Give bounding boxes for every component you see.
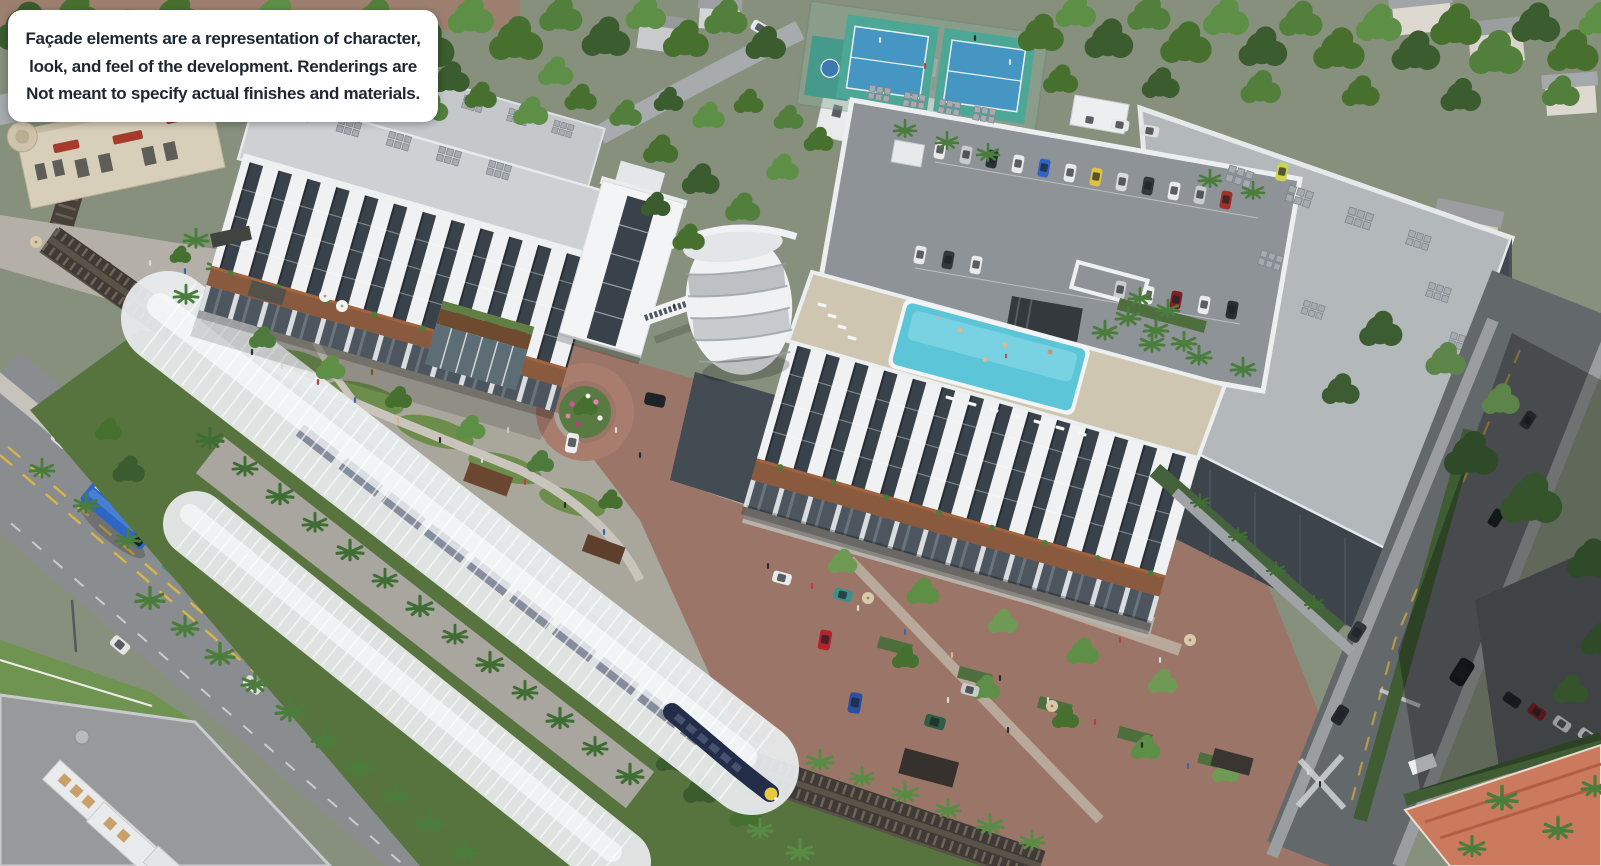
disclaimer-note: Façade elements are a representation of … xyxy=(8,10,438,122)
aerial-rendering xyxy=(0,0,1601,866)
disclaimer-line-2: look, and feel of the development. Rende… xyxy=(14,53,432,81)
disclaimer-line-3: Not meant to specify actual finishes and… xyxy=(14,80,432,108)
rendering-screenshot: Façade elements are a representation of … xyxy=(0,0,1601,866)
disclaimer-line-1: Façade elements are a representation of … xyxy=(14,25,432,53)
